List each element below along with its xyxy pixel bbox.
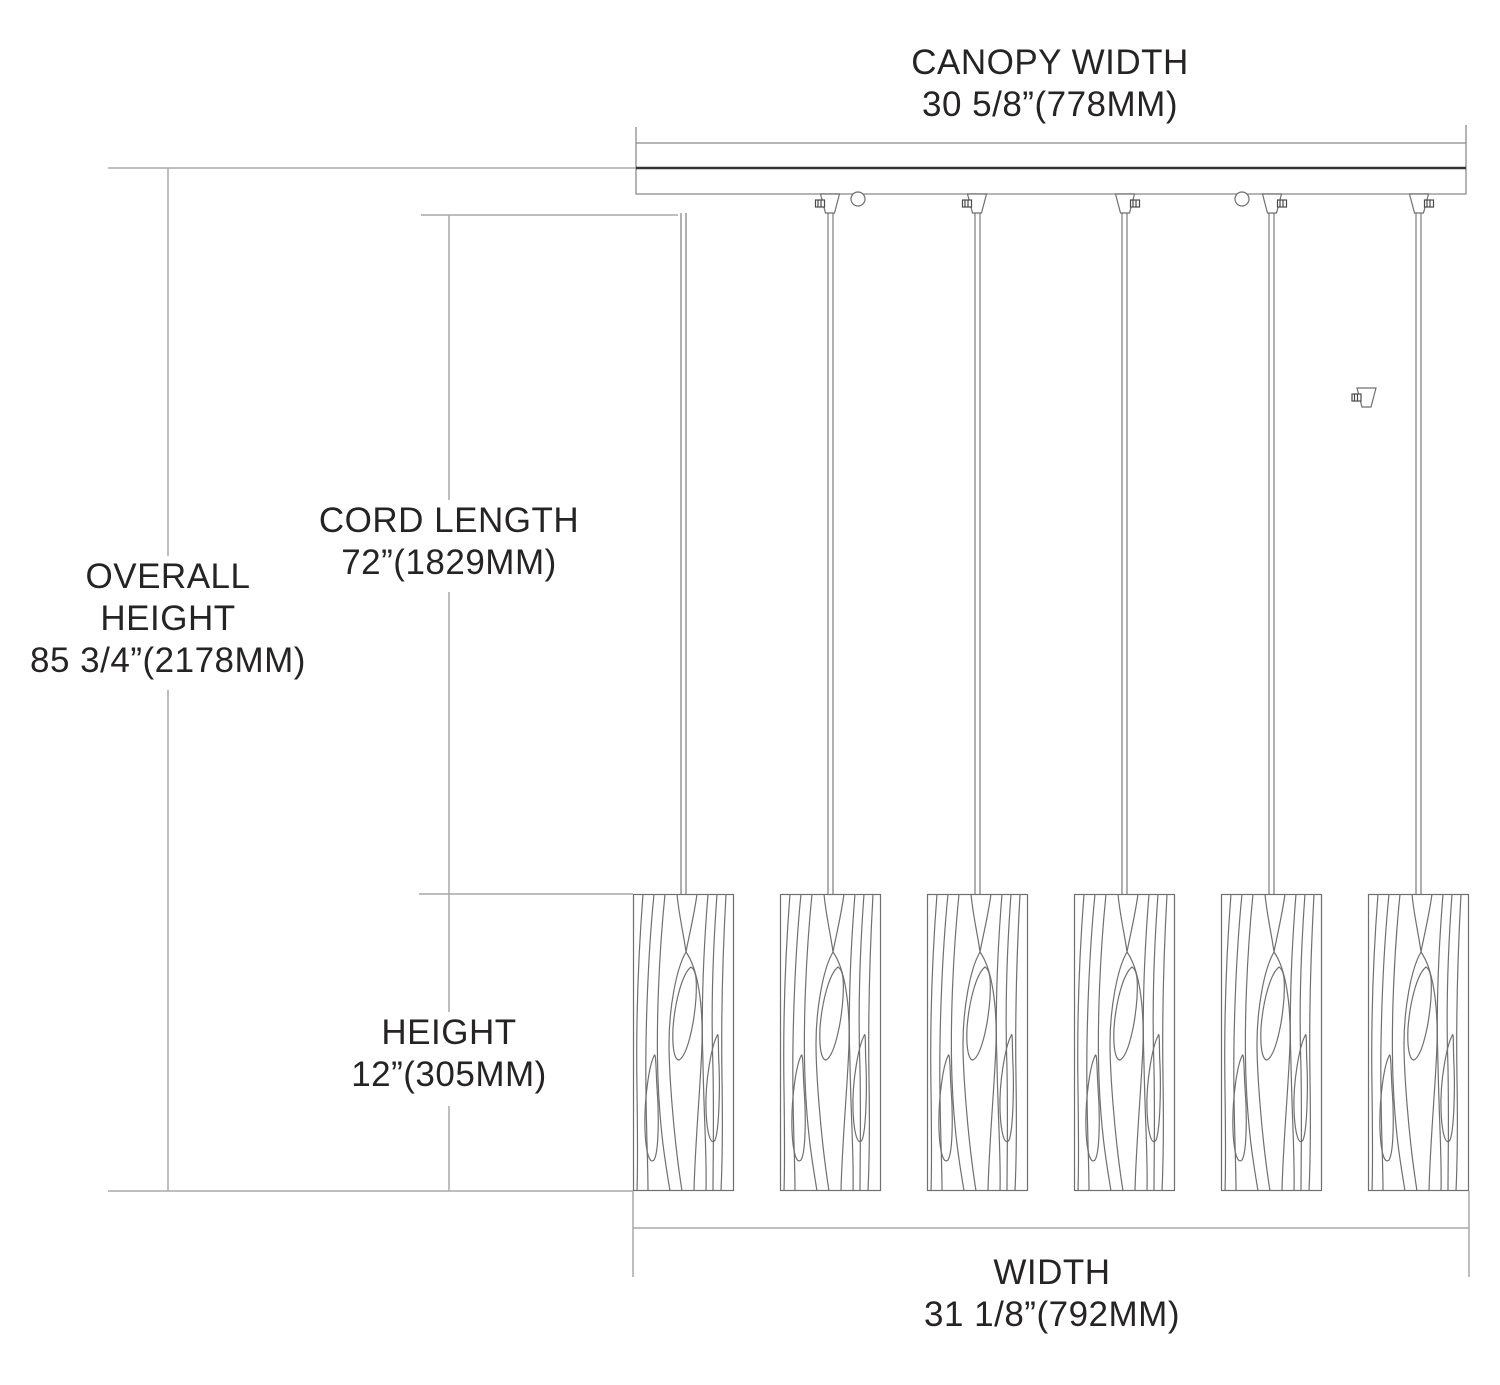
shade-height-value: 12”(305MM) (309, 1054, 589, 1096)
canopy-width-title: CANOPY WIDTH (850, 42, 1250, 84)
width-title: WIDTH (892, 1252, 1212, 1294)
cords (681, 213, 1421, 894)
overall-height-label: OVERALL HEIGHT 85 3/4”(2178MM) (3, 556, 333, 690)
mounting-hole (851, 192, 865, 206)
pendant-shade (634, 894, 734, 1191)
fixture-line-art (0, 0, 1500, 1385)
width-value: 31 1/8”(792MM) (892, 1294, 1212, 1336)
pendant-shade (1369, 894, 1469, 1191)
cord-length-title: CORD LENGTH (289, 500, 609, 542)
pendant-shade (928, 894, 1028, 1191)
mounting-hole (1235, 192, 1249, 206)
cord-length-label: CORD LENGTH 72”(1829MM) (289, 500, 609, 592)
width-label: WIDTH 31 1/8”(792MM) (892, 1252, 1212, 1336)
canopy-width-label: CANOPY WIDTH 30 5/8”(778MM) (850, 42, 1250, 126)
pendant-shade (1075, 894, 1175, 1191)
shade-height-title: HEIGHT (309, 1012, 589, 1054)
cord-grips (816, 194, 1434, 407)
canopy-bar (636, 125, 1466, 206)
overall-height-title-line2: HEIGHT (3, 598, 333, 640)
overall-height-title-line1: OVERALL (3, 556, 333, 598)
pendant-dimension-diagram: CANOPY WIDTH 30 5/8”(778MM) CORD LENGTH … (0, 0, 1500, 1385)
pendant-shade (1222, 894, 1322, 1191)
pendant-shade (781, 894, 881, 1191)
shade-height-label: HEIGHT 12”(305MM) (309, 1012, 589, 1106)
cord-length-value: 72”(1829MM) (289, 542, 609, 584)
overall-height-value: 85 3/4”(2178MM) (3, 640, 333, 682)
canopy-width-value: 30 5/8”(778MM) (850, 84, 1250, 126)
pendant-shades (634, 894, 1469, 1191)
